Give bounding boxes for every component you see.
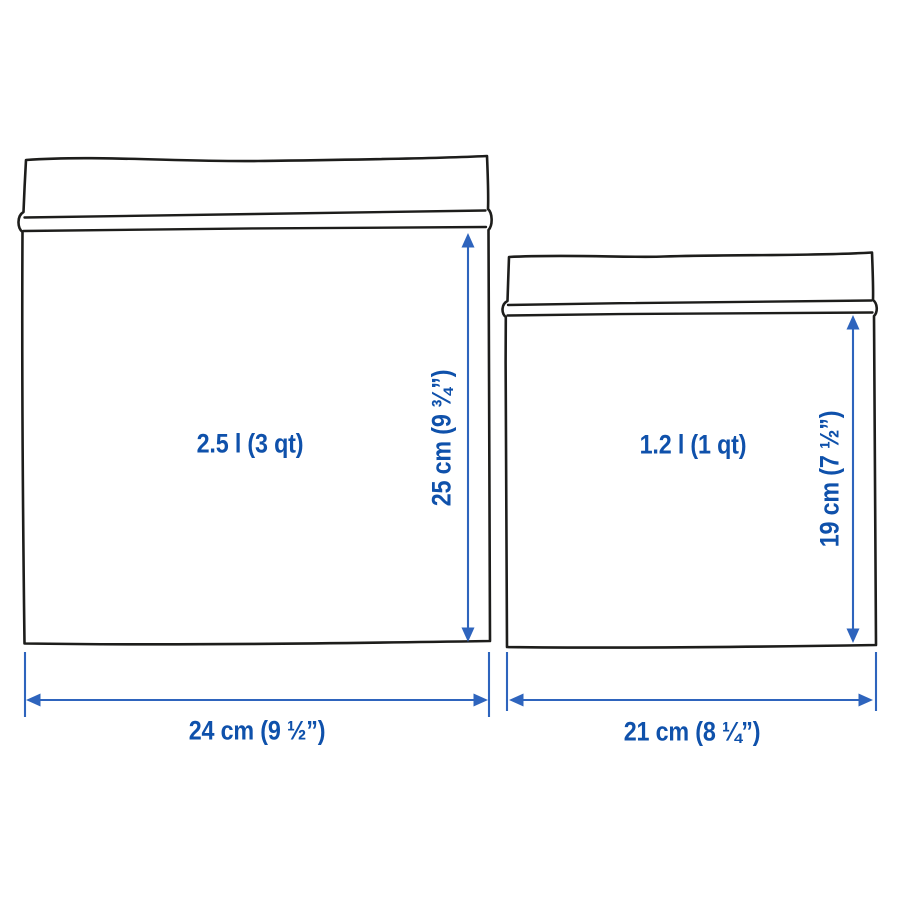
- large-bag-volume-label: 2.5 l (3 qt): [197, 429, 304, 460]
- arrowhead-right-icon: [474, 694, 489, 707]
- small-bag-width-dimension: [507, 652, 876, 711]
- large-bag-drawing: [18, 156, 491, 644]
- small-bag-width-label: 21 cm (8 ¼”): [624, 717, 761, 748]
- arrowhead-left-icon: [26, 694, 41, 707]
- product-dimension-diagram: 2.5 l (3 qt) 25 cm (9 ¾”) 24 cm (9 ½”) 1…: [0, 0, 900, 900]
- large-bag-width-label: 24 cm (9 ½”): [189, 716, 326, 747]
- arrowhead-right-icon: [859, 694, 874, 707]
- small-bag-volume-label: 1.2 l (1 qt): [640, 430, 747, 461]
- large-bag-height-label: 25 cm (9 ¾”): [427, 370, 458, 507]
- arrowhead-left-icon: [509, 694, 524, 707]
- small-bag-height-label: 19 cm (7 ½”): [815, 411, 846, 548]
- large-bag-width-dimension: [25, 652, 489, 717]
